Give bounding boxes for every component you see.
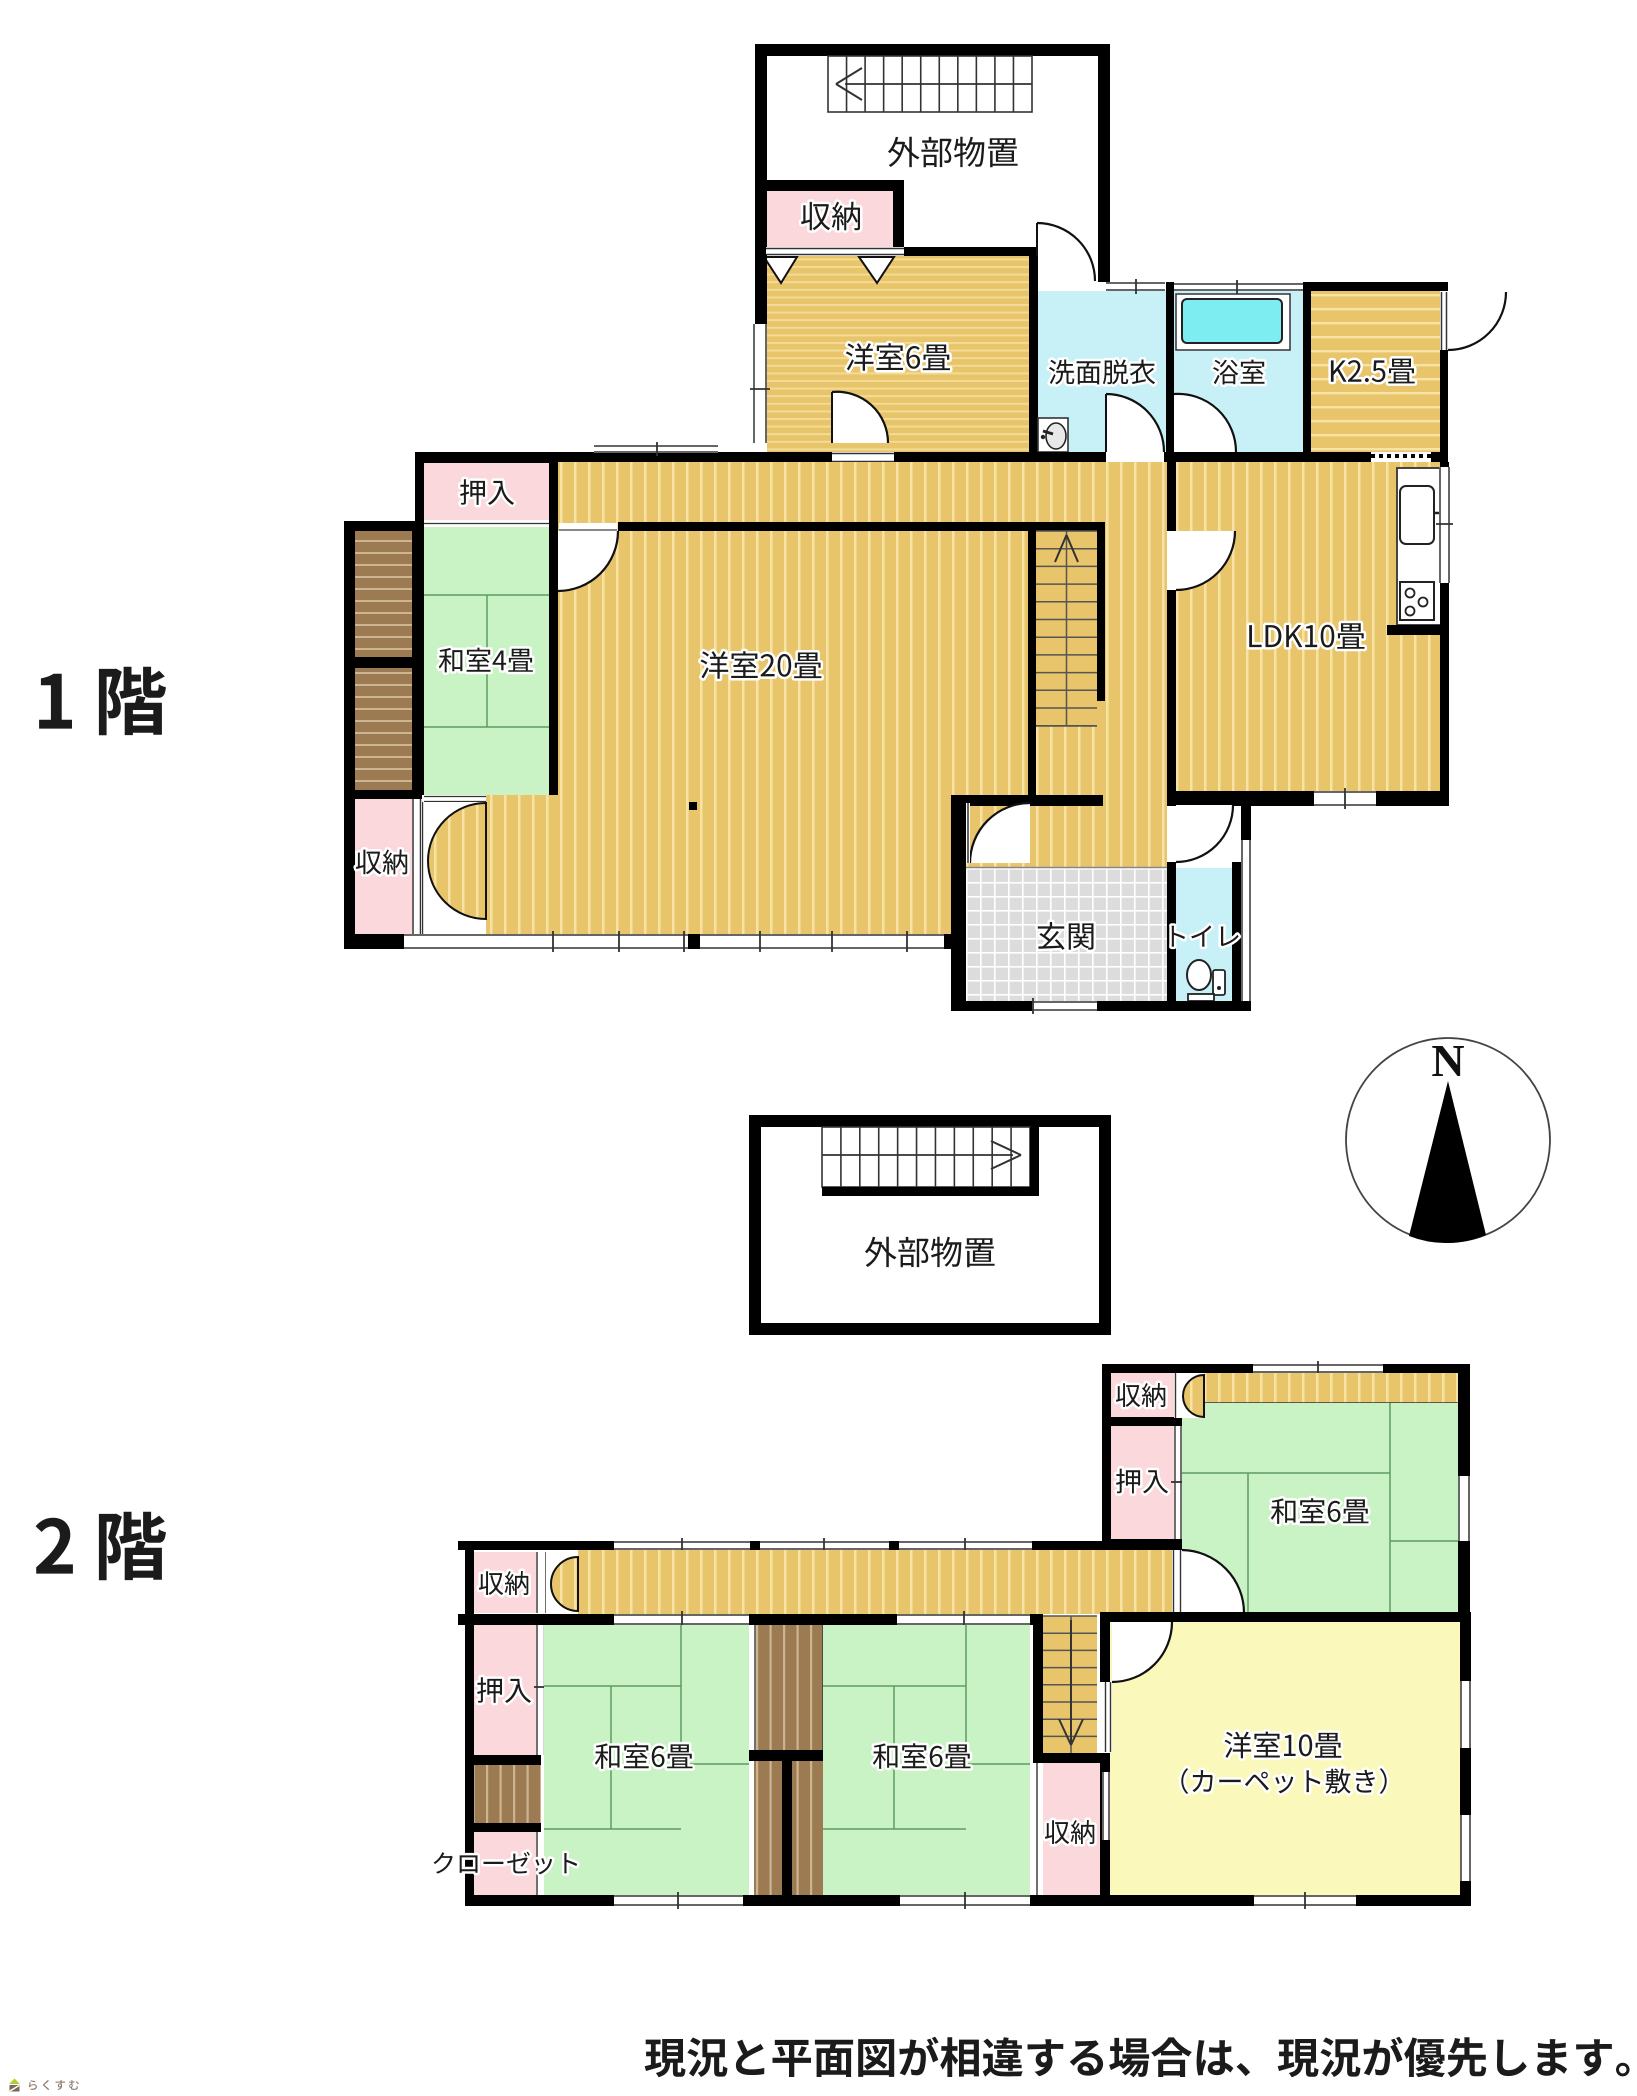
svg-text:N: N	[1431, 1035, 1464, 1086]
